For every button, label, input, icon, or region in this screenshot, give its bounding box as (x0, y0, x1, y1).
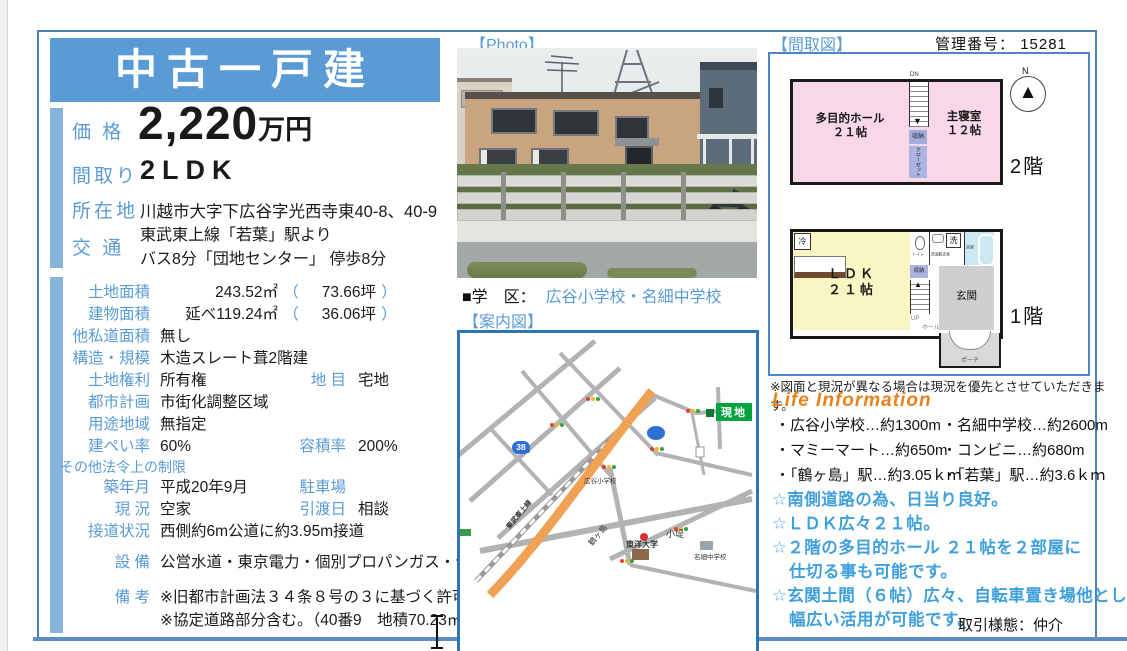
room-bath: 浴室 (965, 232, 994, 265)
management-number-value: 15281 (1020, 36, 1067, 53)
bathtub-icon (978, 234, 995, 266)
window (553, 110, 599, 136)
text-cursor (428, 614, 446, 650)
selling-point: 仕切る事も可能です。 (772, 558, 957, 582)
room-washroom: 洗 洗面脱衣室 (930, 232, 965, 265)
field-label: 備 考 (64, 585, 150, 607)
management-number-label: 管理番号： (935, 36, 1015, 53)
field-value: 相談 (358, 497, 389, 519)
porch-door-arc (949, 331, 991, 350)
life-item: ・マミーマート…約650m (775, 439, 948, 460)
table-row: 土地権利所有権地 目宅地 (64, 368, 389, 390)
convenience-store-icon (696, 447, 704, 457)
accent-bar (50, 108, 63, 268)
route-badge (647, 426, 665, 440)
compass-icon: ▲ (1010, 76, 1046, 112)
toilet-icon (915, 236, 925, 250)
table-row: 用途地域無指定 (64, 412, 207, 434)
life-item: ・コンビニ…約680m (942, 439, 1085, 460)
paren: （ (278, 280, 304, 302)
stairs-dn-label: DN (910, 72, 919, 78)
table-row: 備 考※旧都市計画法３４条８号の３に基づく許可 (64, 585, 468, 607)
porch: ポーチ (939, 333, 1001, 368)
fence-post (561, 172, 566, 222)
selling-point: ☆ＬＤＫ広々２１帖。 (772, 510, 940, 534)
map-label-junior-high: 名細中学校 (694, 551, 727, 561)
stairs-arrow: ▼ (913, 116, 922, 126)
field-value: 空家 (160, 497, 290, 519)
paren: （ (278, 302, 304, 324)
guide-map-caption: 【案内図】 (463, 308, 543, 332)
room-ldk-label: ＬＤＫ ２１帖 (812, 266, 892, 299)
field-label: 接道状況 (64, 519, 150, 541)
store-marker (460, 529, 471, 536)
accent-bar (50, 277, 63, 633)
field-value: 平成20年9月 (160, 475, 290, 497)
field-value: 西側約6m公道に約3.95m接道 (160, 519, 364, 541)
closet-2f: クローゼット (909, 146, 927, 178)
window (709, 88, 723, 108)
floorplan-box: DN ▼ 収納 クローゼット 多目的ホール ２１帖 主寝室 １２帖 N ▲ 2階… (768, 52, 1090, 376)
location-label: 所在地 (72, 196, 138, 223)
room-master-bedroom: 主寝室 １２帖 (930, 110, 998, 139)
field-value: 所有権 (160, 368, 290, 390)
layout-label: 間取り (72, 161, 138, 188)
site-label: 現地 (716, 403, 752, 421)
field-value: 宅地 (358, 368, 389, 390)
school-building-icon (700, 541, 713, 550)
field-value: 243.52㎡ (160, 280, 278, 302)
school-district-value: 広谷小学校・名細中学校 (546, 289, 722, 306)
life-item: ・「若葉」駅…約3.6ｋｍ (942, 464, 1105, 485)
location-value: 川越市大字下広谷字光西寺東40-8、40-9 (140, 198, 437, 222)
selling-point: ☆南側道路の為、日当り良好。 (772, 486, 1008, 510)
flyer-page: 中古一戸建 価 格 2,220万円 間取り 2LDK 所在地 川越市大字下広谷字… (0, 0, 1127, 651)
price-value: 2,220万円 (138, 96, 312, 150)
field-label: 都市計画 (64, 390, 150, 412)
field-value: 市街化調整区域 (160, 390, 269, 412)
carport-beam (697, 134, 757, 139)
transaction-type: 取引様態：仲介 (958, 614, 1063, 635)
fence-post (681, 172, 686, 222)
room-multi-hall-name: 多目的ホール (800, 112, 900, 126)
field-label: 建物面積 (64, 302, 150, 324)
field-value: 60% (160, 438, 290, 456)
entrance-label: 玄関 (939, 288, 994, 303)
field-label: 地 目 (290, 368, 346, 390)
field-label: 築年月 (64, 475, 150, 497)
entrance-canopy (615, 138, 659, 146)
price-unit: 万円 (258, 115, 312, 145)
selling-point: 幅広い活用が可能です。 (772, 606, 974, 630)
laundry-space: 洗 (946, 233, 961, 248)
field-value: 無し (160, 324, 191, 346)
property-photo (457, 48, 757, 278)
room-multi-hall: 多目的ホール ２１帖 (800, 112, 900, 141)
field-label: 容積率 (290, 434, 346, 456)
room-master-size: １２帖 (930, 124, 998, 138)
life-item: ・広谷小学校…約1300m (775, 414, 941, 435)
page-title: 中古一戸建 (50, 38, 440, 102)
fence-post (621, 172, 626, 222)
university-building-icon (632, 549, 649, 560)
tsubo-value: 73.66坪 (304, 280, 376, 302)
stairs-up-arrow: ▲ (914, 280, 922, 289)
window-edge (0, 0, 8, 651)
field-value: 200% (358, 438, 398, 456)
school-district-label: ■学 区： (462, 289, 536, 306)
toilet-label: トイレ (912, 252, 924, 257)
table-row: 構造・規模木造スレート葺2階建 (64, 346, 308, 368)
room-master-name: 主寝室 (930, 110, 998, 124)
map-label-university: 東洋大学 (626, 539, 658, 550)
table-row: 建物面積延べ119.24㎡（36.06坪） (64, 302, 402, 324)
selling-point: ☆２階の多目的ホール ２１帖を２部屋に (772, 534, 1081, 558)
school-district: ■学 区：広谷小学校・名細中学校 (462, 283, 722, 307)
table-row: 土地面積243.52㎡（73.66坪） (64, 280, 402, 302)
price-number: 2,220 (138, 97, 258, 149)
guide-map: 38 現地 東武東上線 鶴ヶ島 東洋大学 小堤 名細中学校 広谷小学校 (457, 330, 759, 651)
map-label-elementary: 広谷小学校 (584, 475, 617, 485)
room-toilet: トイレ (910, 232, 930, 265)
section-note: その他法令上の制限 (60, 457, 186, 477)
route-badge-38: 38 (512, 441, 530, 454)
fridge-space: 冷 (794, 233, 811, 250)
sink-icon (932, 234, 944, 243)
tsubo-value: 36.06坪 (304, 302, 376, 324)
map-canvas (460, 333, 756, 651)
access-line2: バス8分「団地センター」 停歩8分 (140, 245, 386, 269)
fence-post (501, 172, 506, 222)
window (615, 116, 649, 140)
management-number: 管理番号： 15281 (935, 33, 1067, 54)
map-label-spot: 小堤 (666, 527, 684, 540)
price-label: 価 格 (72, 117, 124, 144)
washroom-label: 洗面脱衣室 (931, 252, 950, 257)
life-information-title: Life Information (772, 390, 932, 412)
field-label: 土地権利 (64, 368, 150, 390)
layout-value: 2LDK (140, 155, 239, 186)
life-item: ・名細中学校…約2600m (942, 414, 1108, 435)
paren: ） (376, 302, 402, 324)
grass-tuft (467, 262, 587, 278)
table-row: 現 況空家引渡日相談 (64, 497, 389, 519)
field-label: 構造・規模 (64, 346, 150, 368)
grass-tuft (607, 268, 697, 278)
field-label: 設 備 (64, 550, 150, 572)
up-label: UP (911, 316, 919, 322)
bath-label: 浴室 (966, 245, 974, 250)
field-label: 引渡日 (290, 497, 346, 519)
table-row: 接道状況西側約6m公道に約3.95m接道 (64, 519, 364, 541)
field-value: 木造スレート葺2階建 (160, 346, 308, 368)
porch-label: ポーチ (961, 355, 979, 364)
table-row: 都市計画市街化調整区域 (64, 390, 269, 412)
site-marker (706, 409, 714, 417)
table-row: 建ぺい率60%容積率200% (64, 434, 398, 456)
field-label: 他私道面積 (64, 324, 150, 346)
access-line1: 東武東上線「若葉」駅より (140, 221, 332, 245)
life-item: ・「鶴ヶ島」駅…約3.05ｋｍ (775, 464, 962, 485)
field-label: 建ぺい率 (64, 434, 150, 456)
floor-1f-label: 1階 (1010, 300, 1045, 329)
table-row: 築年月平成20年9月駐車場 (64, 475, 358, 497)
field-label: 土地面積 (64, 280, 150, 302)
table-row: 他私道面積無し (64, 324, 191, 346)
window (491, 108, 537, 134)
field-value: ※旧都市計画法３４条８号の３に基づく許可 (160, 585, 468, 607)
ldk-size: ２１帖 (812, 282, 892, 298)
floor-2f-label: 2階 (1010, 150, 1045, 179)
paren: ） (376, 280, 402, 302)
room-multi-hall-size: ２１帖 (800, 126, 900, 140)
selling-point: ☆玄関土間（６帖）広々、自転車置き場他として (772, 582, 1127, 606)
room-entrance: 玄関 (939, 266, 994, 330)
field-label: 用途地域 (64, 412, 150, 434)
hall-1f-label: ホール (922, 322, 940, 331)
field-label: 駐車場 (290, 475, 346, 497)
storage-2f: 収納 (909, 130, 927, 144)
field-label: 現 況 (64, 497, 150, 519)
access-label: 交 通 (72, 233, 124, 260)
compass-n-label: N (1022, 66, 1029, 76)
storage-1f: 収納 (910, 265, 928, 278)
field-value: 無指定 (160, 412, 207, 434)
field-value: 延べ119.24㎡ (160, 302, 278, 324)
fence-base (457, 220, 757, 243)
ldk-name: ＬＤＫ (812, 266, 892, 282)
